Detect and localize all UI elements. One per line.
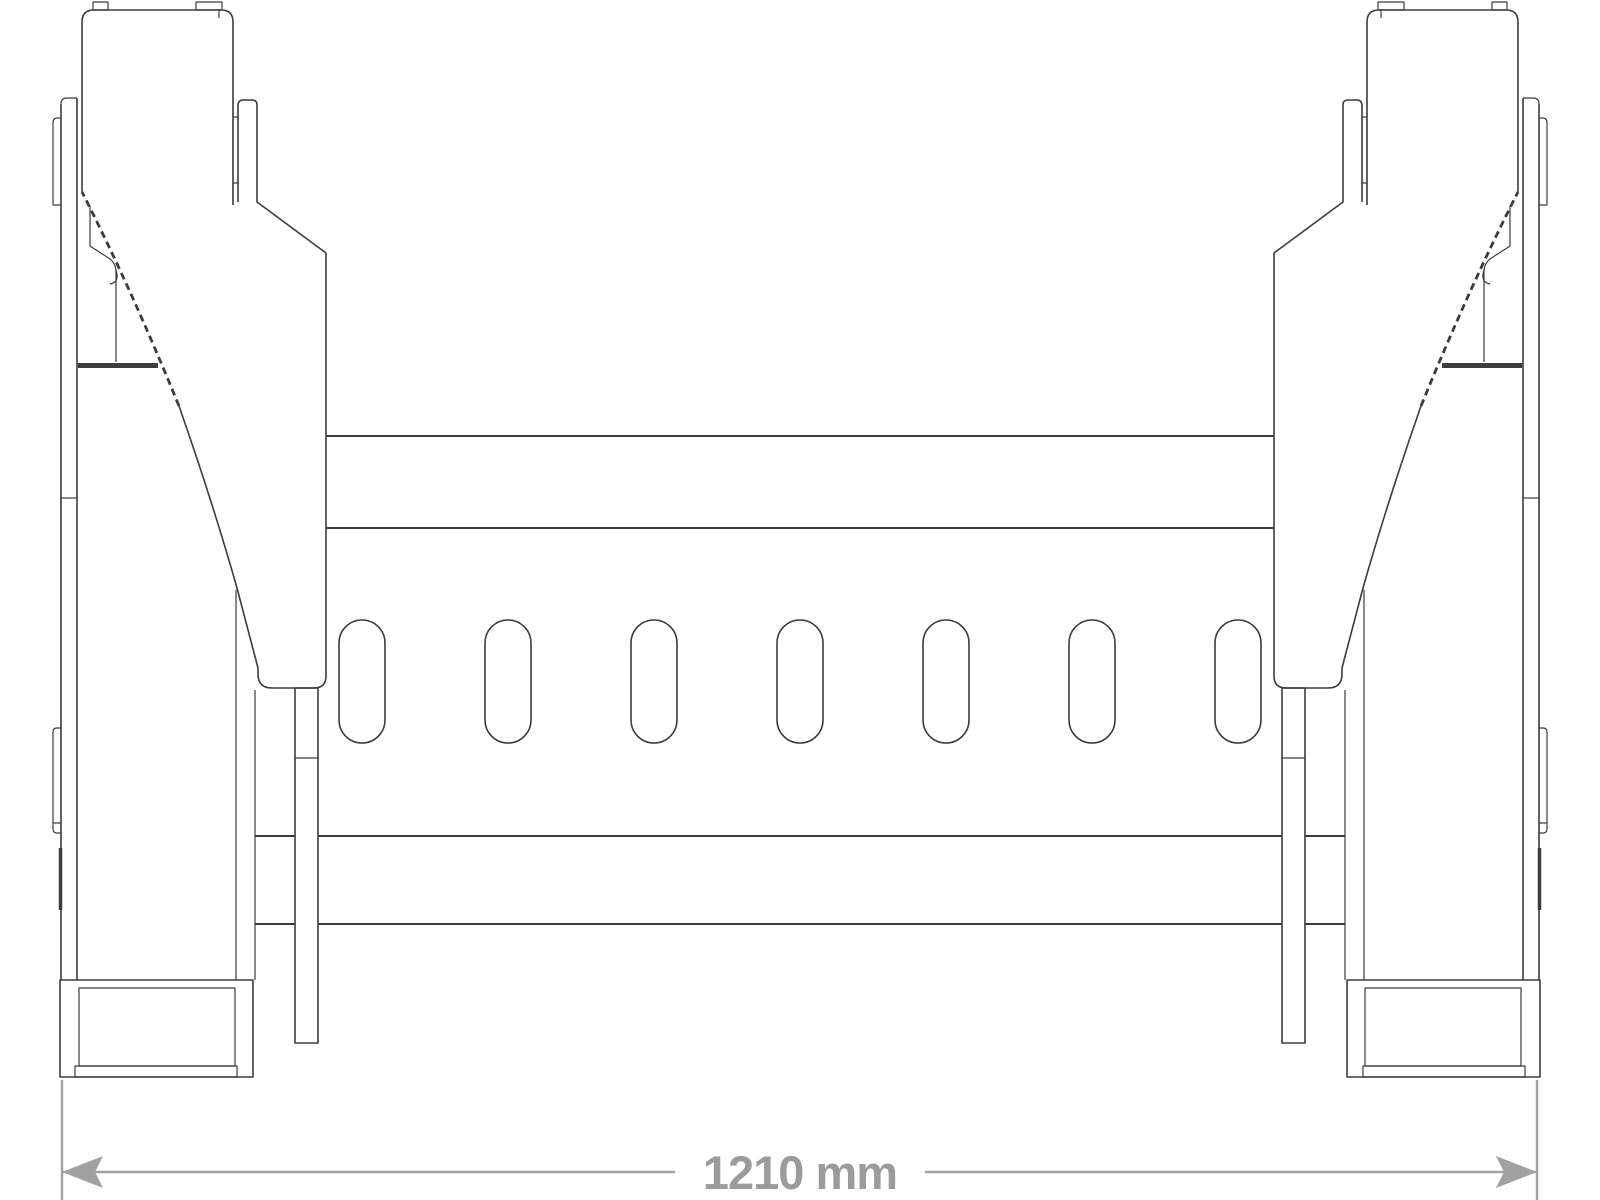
slot xyxy=(631,620,677,743)
slot xyxy=(1069,620,1115,743)
dimension-label: 1210 mm xyxy=(703,1146,897,1199)
crossbar-lower xyxy=(318,836,1282,924)
technical-drawing-canvas: 1210 mm xyxy=(0,0,1600,1200)
technical-drawing: 1210 mm xyxy=(0,0,1600,1200)
right-post-assembly xyxy=(1274,2,1547,1077)
slot-row xyxy=(339,620,1261,743)
dimension-annotation: 1210 mm xyxy=(62,1080,1537,1200)
slot xyxy=(923,620,969,743)
crossbar-upper xyxy=(326,436,1274,528)
slot xyxy=(1215,620,1261,743)
slot xyxy=(777,620,823,743)
slot xyxy=(339,620,385,743)
slot xyxy=(485,620,531,743)
left-post-assembly xyxy=(53,2,326,1077)
